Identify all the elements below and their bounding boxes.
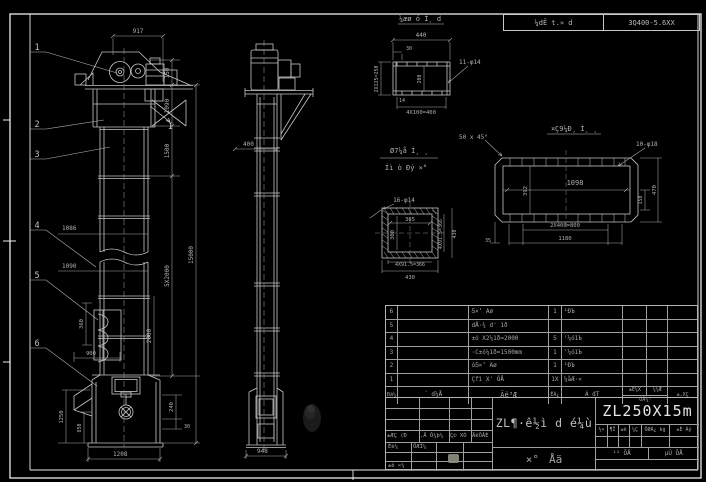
row-name: ·C±ó¼1ð=1500mm: [469, 347, 548, 360]
detail-a-w: 440: [416, 32, 427, 39]
dim-sections: 5X2000: [164, 265, 171, 287]
dim-w1: 1086: [62, 225, 77, 232]
front-view-dims: [58, 34, 200, 462]
side-view-dims: [233, 147, 288, 459]
table-row: 2 óƼ×ʼ Aø 1 ¹ÐЪ: [386, 359, 697, 373]
sheets-row: ¹² ÕÅ µÚ ÕÅ: [596, 447, 699, 459]
stage-cell-1: ½×: [596, 425, 607, 436]
sheet-header-right-cell: 3Q400-5.6XX: [603, 14, 700, 31]
detail-b: [380, 158, 438, 258]
row-code: [398, 347, 470, 360]
sheets-number: µÚ ÕÅ: [649, 448, 700, 459]
row-name: Ƽ×ʼ Aø: [469, 306, 548, 319]
row-w1: [623, 320, 647, 333]
title-block: ±ÆÇ (Ð ,Ä Ô¼þ¼ Ç© XÓ ÄêÔÂÈ Éè¼ ÖÆÍ¼ ±ê ×…: [385, 397, 698, 470]
front-view-callout-numbers: 1 2 3 4 5 6: [34, 43, 39, 349]
model-box: ZL250X15m: [596, 398, 699, 424]
subtitle-char-2: Åä: [549, 453, 562, 466]
detail-c: [495, 134, 638, 222]
callout-5: 5: [34, 271, 39, 281]
dim-boot1: 240: [169, 402, 175, 412]
header-weight-unit: ±Ê¼X: [623, 387, 647, 395]
dim-total-h: 15000: [188, 246, 195, 264]
row-code: [398, 320, 470, 333]
row-remark: [668, 320, 697, 333]
detail-c-inner-h: 392: [523, 186, 529, 196]
detail-b-pitch-r: 4X91.5=366: [438, 219, 444, 249]
table-row: 1 Çfì X' ÓÅ 1X ¼åÆ·«: [386, 373, 697, 387]
detail-c-inner-w: 1098: [567, 179, 584, 187]
drawing-subtitle-box: ×° Åä: [493, 447, 596, 471]
dim-head-width: 917: [133, 28, 144, 35]
dim-bucket-h: 360: [79, 319, 85, 329]
table-row: 5 dÅ·¾ d' 1ð: [386, 319, 697, 333]
row-w1: [623, 333, 647, 346]
row-material: [562, 320, 624, 333]
detail-a-dims: [378, 38, 468, 109]
stage-cell-4: ¼Ç: [629, 425, 641, 436]
row-qty: 1: [549, 306, 562, 319]
detail-b-inner-w: 365: [405, 217, 415, 223]
detail-a-holes: 11-φ14: [459, 59, 481, 66]
header-weight-total: ¼¼Æ: [647, 387, 667, 395]
stage-cell-3: ±ê: [618, 425, 629, 436]
detail-b-out-r: 430: [452, 229, 458, 238]
row-w1: [623, 347, 647, 360]
cad-drawing-page: 917 150 1090 1500 5X2000 15000 2000 240 …: [0, 0, 706, 482]
row-w2: [647, 333, 668, 346]
row-w2: [647, 374, 668, 387]
dim-upper1: 1090: [164, 98, 171, 113]
detail-b-title-1: Ø7¼å Ì¸ ¸: [390, 146, 428, 155]
dim-side-base-w: 948: [257, 448, 268, 455]
row-remark: [668, 306, 697, 319]
row-seq: 6: [386, 306, 398, 319]
row-name: óƼ×ʼ Aø: [469, 360, 548, 373]
row-w1: [623, 374, 647, 387]
dim-boot2: 30: [184, 424, 190, 430]
sig-design-label: Éè¼: [388, 443, 410, 452]
callout-6: 6: [34, 339, 39, 349]
detail-b-centerlines: [375, 202, 445, 264]
callout-2: 2: [34, 120, 39, 130]
sheets-total: ¹² ÕÅ: [596, 448, 649, 459]
detail-b-inner-h: 300: [390, 230, 396, 240]
detail-c-right-1: 150: [638, 195, 644, 204]
row-w2: [647, 306, 668, 319]
detail-c-dims: [485, 140, 662, 245]
detail-b-holes: 16-φ14: [393, 197, 415, 204]
row-remark: [668, 360, 697, 373]
detail-b-out-b: 430: [405, 275, 415, 281]
detail-c-pitch: 2X400=800: [550, 223, 580, 229]
table-row: 3 ·C±ó¼1ð=1500mm 1 '¼ó1Ъ: [386, 346, 697, 360]
row-seq: 1: [386, 374, 398, 387]
signature-grid: Éè¼ ÖÆÍ¼ ±ê ×¼: [386, 442, 493, 471]
row-w1: [623, 306, 647, 319]
stage-cell-2: ¶Î: [607, 425, 618, 436]
detail-c-out-w: 1180: [558, 236, 571, 242]
revision-grid: ±ÆÇ (Ð ,Ä Ô¼þ¼ Ç© XÓ ÄêÔÂÈ: [386, 398, 493, 442]
row-qty: 1: [549, 360, 562, 373]
detail-c-edge: 35: [485, 238, 491, 244]
row-w2: [647, 360, 668, 373]
section-mark-label: I: [168, 122, 173, 132]
detail-a-pitch: 4X100=400: [406, 110, 436, 116]
front-view: [74, 52, 193, 447]
table-row: 4 ±ó X2¼1ð=2000 5 '¼ó1Ъ: [386, 332, 697, 346]
row-material: ¼åÆ·«: [562, 374, 624, 387]
dim-upper2: 1500: [164, 143, 171, 158]
detail-a-title: ¼æø ó Ì¸ d: [399, 14, 441, 23]
row-material: '¼ó1Ъ: [562, 333, 624, 346]
row-code: [398, 360, 470, 373]
row-seq: 2: [386, 360, 398, 373]
detail-a-inner: 200: [417, 74, 423, 83]
row-name: ±ó X2¼1ð=2000: [469, 333, 548, 346]
row-w2: [647, 347, 668, 360]
rev-label-4: ÄêÔÂÈ: [472, 431, 493, 441]
callout-4: 4: [34, 221, 39, 231]
drawing-title-box: ZL¶·ê½ì d é¼ù: [493, 398, 596, 447]
dim-pit1: 1250: [59, 410, 65, 423]
detail-c-chamfer: 50 x 45°: [459, 134, 488, 141]
subtitle-char-1: ×°: [526, 453, 539, 466]
detail-c-right-2: 470: [652, 185, 658, 195]
row-qty: [549, 320, 562, 333]
scale-label: ±È Àý: [669, 425, 699, 436]
model-number: ZL250X15m: [602, 402, 692, 420]
detail-c-title: ¤Ç9¼Ð¸ Ì¸ ¸: [551, 124, 597, 133]
rev-label-3: Ç© XÓ: [450, 431, 471, 441]
front-view-dim-text: 917 150 1090 1500 5X2000 15000 2000 240 …: [59, 28, 195, 458]
row-qty: 5: [549, 333, 562, 346]
row-qty: 1: [549, 347, 562, 360]
detail-a-side: 2X125=250: [374, 65, 380, 92]
row-name: Çfì X' ÓÅ: [469, 374, 548, 387]
row-w2: [647, 320, 668, 333]
dim-head-h: 150: [164, 67, 171, 78]
weight-label: ÖØÁ¿ kg: [641, 425, 669, 436]
detail-a-t: 14: [399, 98, 405, 104]
row-code: [398, 306, 470, 319]
row-material: ¹ÐЪ: [562, 306, 624, 319]
sig-draw-label: ÖÆÍ¼: [413, 443, 435, 452]
sheet-header-left-cell: ¼dÊ t.» d: [503, 14, 604, 31]
dim-side-casing-w: 400: [243, 141, 254, 148]
row-material: ¹ÐЪ: [562, 360, 624, 373]
callout-3: 3: [34, 150, 39, 160]
detail-c-holes: 10-φ18: [636, 141, 658, 148]
table-row: 6 Ƽ×ʼ Aø 1 ¹ÐЪ: [386, 306, 697, 319]
title-block-empty-box: [596, 459, 699, 471]
row-code: [398, 333, 470, 346]
detail-b-title-2: Íì ò Ðý ×°: [385, 163, 427, 172]
detail-a-offset: 30: [406, 46, 412, 52]
drawing-title: ZL¶·ê½ì d é¼ù: [496, 416, 593, 430]
row-seq: 4: [386, 333, 398, 346]
rev-label-2: ,Ä Ô¼þ¼: [420, 431, 449, 441]
dim-pit2: 850: [77, 423, 83, 432]
row-remark: [668, 374, 697, 387]
row-material: '¼ó1Ъ: [562, 347, 624, 360]
row-seq: 3: [386, 347, 398, 360]
stage-grid: ½× ¶Î ±ê ¼Ç ÖØÁ¿ kg ±È Àý: [596, 424, 699, 447]
dim-boot-w: 900: [86, 351, 96, 357]
row-remark: [668, 347, 697, 360]
callout-1: 1: [34, 43, 39, 53]
row-w1: [623, 360, 647, 373]
dim-base-w: 1208: [113, 451, 128, 458]
dim-w2: 1090: [62, 263, 77, 270]
row-name: dÅ·¾ d' 1ð: [469, 320, 548, 333]
detail-b-pitch-b: 4X91.5=366: [395, 262, 425, 268]
dim-lower: 2000: [146, 328, 153, 343]
row-seq: 5: [386, 320, 398, 333]
smudge-artifact: [303, 404, 321, 432]
row-qty: 1X: [549, 374, 562, 387]
parts-table: 6 Ƽ×ʼ Aø 1 ¹ÐЪ 5 dÅ·¾ d' 1ð 4 ±ó X2¼1ð=2…: [385, 305, 698, 397]
side-view: [245, 44, 313, 448]
row-code: [398, 374, 470, 387]
stamp-mark: [448, 454, 459, 463]
row-remark: [668, 333, 697, 346]
rev-label-1: ±ÆÇ (Ð: [387, 431, 419, 441]
sig-standard-label: ±ê ×¼: [388, 462, 418, 471]
